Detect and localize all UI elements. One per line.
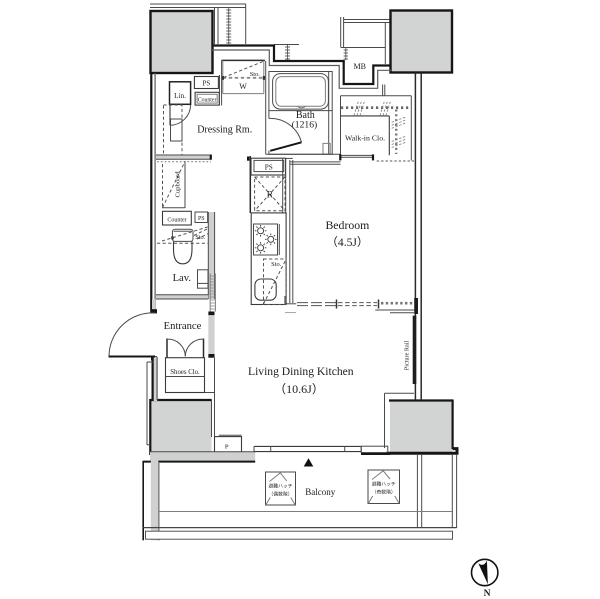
svg-text:N: N (484, 589, 491, 599)
svg-text:W: W (239, 82, 247, 91)
svg-text:Counter: Counter (198, 97, 217, 103)
svg-text:PS: PS (198, 216, 205, 222)
svg-text:Living Dining Kitchen: Living Dining Kitchen (248, 365, 354, 378)
svg-text:Counter: Counter (167, 217, 186, 223)
svg-text:Balcony: Balcony (305, 487, 335, 497)
svg-text:Sto.: Sto. (195, 234, 205, 241)
svg-text:（4.5J）: （4.5J） (326, 235, 368, 249)
svg-text:R: R (267, 190, 274, 200)
svg-text:Entrance: Entrance (164, 321, 202, 332)
svg-text:Lav.: Lav. (173, 273, 191, 284)
svg-text:Bedroom: Bedroom (325, 218, 369, 232)
svg-text:（偶数階）: （偶数階） (269, 491, 293, 498)
svg-text:避難ハッチ: 避難ハッチ (269, 483, 293, 490)
svg-text:(1216): (1216) (292, 119, 318, 130)
svg-text:PS: PS (265, 163, 273, 171)
svg-text:Sto.: Sto. (250, 71, 261, 78)
svg-text:MB: MB (354, 62, 366, 71)
svg-text:Lin.: Lin. (174, 92, 186, 100)
svg-text:Cupboard: Cupboard (175, 171, 182, 198)
svg-text:P: P (225, 443, 229, 450)
svg-text:Walk-in Clo.: Walk-in Clo. (345, 134, 385, 143)
svg-text:Sto.: Sto. (271, 261, 282, 268)
svg-text:（奇数階）: （奇数階） (372, 489, 396, 496)
svg-text:避難ハッチ: 避難ハッチ (372, 481, 396, 488)
svg-text:（10.6J）: （10.6J） (274, 382, 324, 396)
svg-text:PS: PS (203, 80, 211, 88)
svg-text:Dressing Rm.: Dressing Rm. (197, 124, 252, 135)
svg-text:Picture Rail: Picture Rail (404, 341, 411, 371)
svg-text:Shoes Clo.: Shoes Clo. (170, 369, 200, 376)
